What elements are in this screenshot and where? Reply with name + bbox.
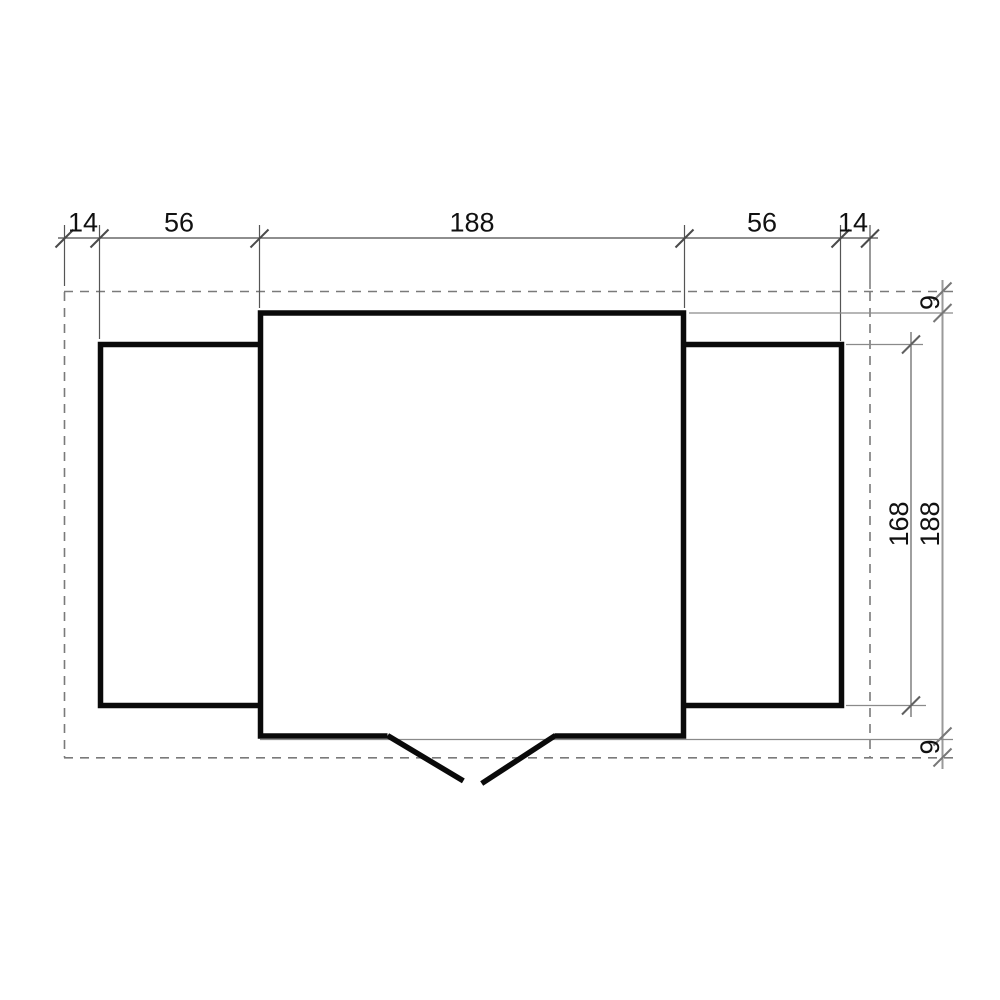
left-annex-outline	[101, 345, 263, 706]
main-building-outline	[261, 313, 684, 736]
door-leaf-right	[484, 737, 553, 782]
dim-label-top-14-right: 14	[838, 208, 868, 238]
dim-label-right-188: 188	[915, 501, 945, 546]
dim-label-right-9-bottom: 9	[915, 739, 945, 754]
dim-label-right-9-top: 9	[915, 295, 945, 310]
double-door-symbol	[390, 737, 553, 782]
floor-plan-drawing: 14 56 188 56 14 9 168 188 9	[0, 0, 1000, 1000]
building-outlines	[101, 313, 842, 736]
dim-label-top-56-left: 56	[164, 208, 194, 238]
dim-label-right-168: 168	[884, 501, 914, 546]
dim-label-top-14-left: 14	[68, 208, 98, 238]
dim-label-top-188: 188	[449, 208, 494, 238]
dim-label-top-56-right: 56	[747, 208, 777, 238]
right-annex-outline	[683, 345, 842, 706]
floor-plan-canvas: 14 56 188 56 14 9 168 188 9	[0, 0, 1000, 1000]
